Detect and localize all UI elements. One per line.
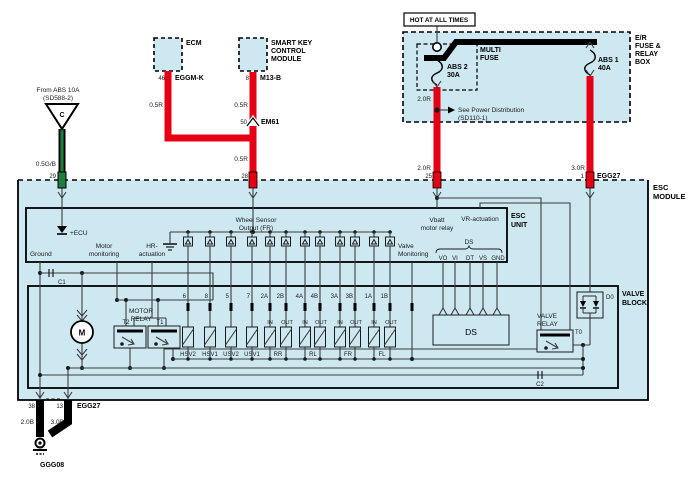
junction-pin-50: 50 [240, 120, 247, 126]
pin-1: 1 [581, 174, 585, 180]
junction-em61-marker [247, 117, 259, 126]
esc-module-label-2: MODULE [653, 192, 686, 201]
diode-d0-label: D0 [606, 295, 614, 301]
ecu-label: +ECU [70, 230, 88, 237]
fusebox-name-2: FUSE & [635, 43, 661, 50]
green-wire-abs-feed [58, 129, 66, 188]
motor-relay-label-2: RELAY [131, 316, 152, 323]
fuse-abs1-label: ABS 1 [598, 57, 619, 64]
valve-pin-2a: 2A [261, 294, 268, 300]
pin-28: 28 [241, 174, 248, 180]
relay-t1-label: T1 [156, 320, 164, 326]
ecm-label: ECM [186, 40, 202, 47]
fusebox-name-1: E/R [635, 35, 647, 42]
ground-pin-label: Ground [30, 251, 52, 258]
vbatt-label-2: motor relay [421, 225, 454, 232]
flow-in-rr: IN [267, 320, 273, 326]
vr-actuation-label: VR-actuation [461, 216, 499, 223]
valve-relay-label-2: RELAY [537, 321, 558, 328]
relay-t2-label: T2 [122, 320, 130, 326]
valve-pin-3a: 3A [331, 294, 338, 300]
esc-unit-label-1: ESC [511, 213, 525, 220]
connector-egg27-top: EGG27 [597, 173, 620, 180]
ds-pin-dt: DT [466, 256, 474, 262]
valve-monitoring-label-1: Valve [398, 243, 414, 250]
wire-2-0b: 2.0B [21, 419, 34, 426]
valve-block-label-2: BLOCK [622, 300, 647, 307]
ds-pin-vo: VO [439, 256, 448, 262]
skcm-pin: 8 [246, 76, 250, 82]
valve-pin-1b: 1B [381, 294, 388, 300]
wire-size-green: 0.5G/B [36, 161, 56, 168]
motor-monitoring-label-1: Motor [96, 243, 113, 250]
esc-module-panel [18, 180, 648, 400]
flow-in-fr: IN [337, 320, 343, 326]
flow-out-fl: OUT [385, 320, 397, 326]
see-power-distribution-2: (SD110-1) [458, 115, 488, 122]
fusebox-name-3: RELAY [635, 51, 658, 58]
pin-13: 13 [56, 404, 63, 410]
motor-m-label: M [79, 329, 86, 338]
fuse-abs2-label: ABS 2 [447, 64, 468, 71]
ds-pin-vs: VS [479, 256, 487, 262]
fuse-abs1-rating: 40A [598, 65, 611, 72]
abs-feed-source-label: From ABS 10A [37, 87, 81, 94]
wire-2-0r-upper: 2.0R [417, 96, 431, 103]
fuse-abs2-rating: 30A [447, 72, 460, 79]
valve-block-label-1: VALVE [622, 291, 645, 298]
ecm-pin: 46 [158, 76, 165, 82]
valve-pin-3b: 3B [346, 294, 353, 300]
flow-in-fl: IN [371, 320, 377, 326]
flow-out-rl: OUT [315, 320, 327, 326]
valve-name-rr: RR [274, 352, 283, 358]
valve-pin-2b: 2B [277, 294, 284, 300]
valve-relay-label-1: VALVE [537, 313, 558, 320]
pin-29: 29 [49, 174, 56, 180]
motor-monitoring-label-2: monitoring [89, 251, 120, 258]
multi-fuse-label-2: FUSE [480, 55, 499, 62]
hr-actuation-label-2: actuation [139, 251, 166, 258]
ds-pin-gnd: GND [491, 256, 505, 262]
pin-38: 38 [28, 404, 35, 410]
see-power-distribution-1: See Power Distribution [458, 107, 524, 114]
motor-relay-label-1: MOTOR [129, 308, 153, 315]
valve-name-hsv2: HSV2 [180, 352, 196, 358]
ds-box-label: DS [465, 327, 477, 337]
valve-name-usv1: USV1 [244, 352, 260, 358]
wiring-diagram-page: From ABS 10A (SD588-2) C 0.5G/B 29 ECM 4… [0, 0, 700, 489]
abs-feed-source-ref: (SD588-2) [43, 95, 73, 102]
wire-3-0r: 3.0R [571, 165, 585, 172]
wire-3-0b: 3.0B [51, 419, 64, 426]
valve-name-fl: FL [378, 352, 386, 358]
esc-unit-label-2: UNIT [511, 222, 528, 229]
esc-wiring-diagram: From ABS 10A (SD588-2) C 0.5G/B 29 ECM 4… [0, 0, 700, 489]
skcm-label-2: CONTROL [271, 48, 306, 55]
smart-key-box [239, 38, 267, 71]
junction-em61-label: EM61 [261, 119, 279, 126]
valve-name-usv2: USV2 [223, 352, 239, 358]
skcm-wire-size-lower: 0.5R [234, 156, 248, 163]
relay-t0-label: T0 [575, 330, 583, 336]
ds-group-label: DS [464, 239, 474, 246]
valve-name-rl: RL [309, 352, 317, 358]
valve-pin-1a: 1A [365, 294, 372, 300]
flow-in-rl: IN [302, 320, 308, 326]
ds-pin-vi: VI [452, 256, 458, 262]
valve-name-hsv1: HSV1 [202, 352, 218, 358]
esc-module-label-1: ESC [653, 183, 669, 192]
skcm-connector: M13-B [260, 75, 281, 82]
valve-name-fr: FR [344, 352, 353, 358]
skcm-label-1: SMART KEY [271, 40, 313, 47]
skcm-wire-size-upper: 0.5R [234, 102, 248, 109]
pin-25: 25 [425, 174, 432, 180]
flow-out-rr: OUT [281, 320, 293, 326]
ground-gg08-label: GGG08 [40, 462, 64, 469]
connector-c1-label: C1 [58, 280, 66, 286]
hr-actuation-label-1: HR- [146, 243, 158, 250]
ecm-box [154, 38, 182, 71]
fusebox-name-4: BOX [635, 59, 651, 66]
flow-out-fr: OUT [350, 320, 362, 326]
triangle-connector-letter: C [59, 112, 64, 119]
valve-monitoring-label-2: Monitoring [398, 251, 429, 258]
multi-fuse-label-1: MULTI [480, 47, 501, 54]
ecm-connector: EGGM-K [175, 75, 204, 82]
valve-pin-4a: 4A [296, 294, 303, 300]
wire-2-0r-lower: 2.0R [417, 165, 431, 172]
connector-c2-label: C2 [536, 382, 544, 388]
ecm-wire-size: 0.5R [149, 102, 163, 109]
hot-at-all-times-label: HOT AT ALL TIMES [410, 17, 469, 24]
wheel-sensor-label-2: Output (FR) [239, 225, 273, 232]
valve-pin-4b: 4B [311, 294, 318, 300]
skcm-label-3: MODULE [271, 56, 302, 63]
vbatt-label-1: Vbatt [429, 217, 444, 224]
wheel-sensor-label-1: Wheel Sensor [236, 217, 278, 224]
connector-egg27-bottom: EGG27 [77, 403, 100, 410]
